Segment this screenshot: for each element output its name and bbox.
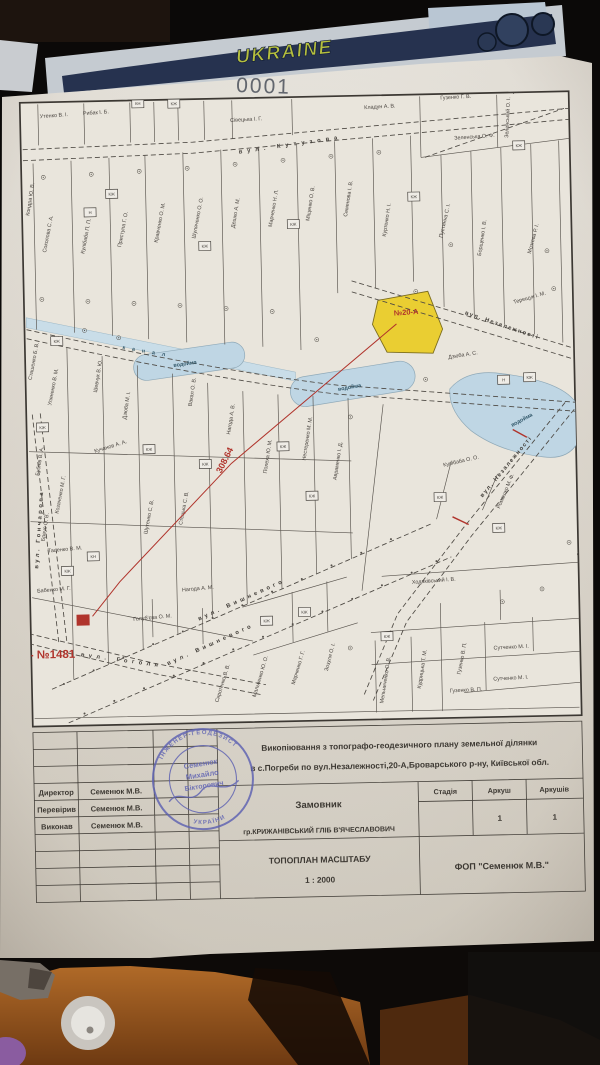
building-label: КН (90, 554, 96, 559)
substation-marker (76, 614, 89, 625)
building-label: КЖ (496, 525, 503, 530)
handwritten-page-number: 0001 (236, 74, 291, 99)
role-label: Директор (39, 788, 75, 798)
building-label: КЖ (516, 143, 523, 148)
role-value: Семенюк М.В. (91, 803, 143, 813)
building-label: КЖ (411, 194, 418, 199)
sheets-value: 1 (553, 813, 558, 822)
building-label: КЖ (202, 462, 209, 467)
building-label: КЖ (146, 447, 153, 452)
role-value: Семенюк М.В. (90, 786, 142, 796)
scene: UKRAINE 0001 (0, 0, 600, 1065)
building-label: КЖ (54, 339, 61, 344)
stage-header: Стадія (433, 787, 457, 796)
building-label: Н (88, 210, 91, 215)
role-label: Перевірив (37, 805, 76, 815)
building-label: КЖ (309, 493, 316, 498)
building-label: КЖ (437, 495, 444, 500)
photo-of-topographic-plan: UKRAINE 0001 (0, 0, 600, 1065)
customer-label: Замовник (295, 799, 342, 811)
sheet-header: Аркуш (488, 786, 511, 795)
role-label: Виконав (41, 822, 73, 832)
building-label: КН (135, 101, 141, 106)
building-label: КЖ (64, 569, 71, 574)
sheets-header: Аркушів (539, 784, 569, 794)
paper-scrap-top-left (0, 40, 38, 92)
parcel-number-label: №20-А (393, 307, 419, 318)
building-label: КЖ (171, 101, 178, 106)
role-value: Семенюк М.В. (91, 820, 143, 830)
building-label: КЖ (39, 425, 46, 430)
building-label: КЖ (526, 375, 533, 380)
building-label: КЖ (108, 192, 115, 197)
building-label: КЖ (263, 618, 270, 623)
building-label: КЖ (290, 222, 297, 227)
building-label: КЖ (301, 610, 308, 615)
plan-scale: 1 : 2000 (305, 875, 336, 885)
building-label: Н (502, 377, 505, 382)
sheet-value: 1 (498, 814, 503, 823)
organization: ФОП "Семенюк М.В." (455, 860, 550, 872)
building-label: КЖ (280, 444, 287, 449)
building-label: КЖ (384, 634, 391, 639)
building-label: КЖ (202, 244, 209, 249)
